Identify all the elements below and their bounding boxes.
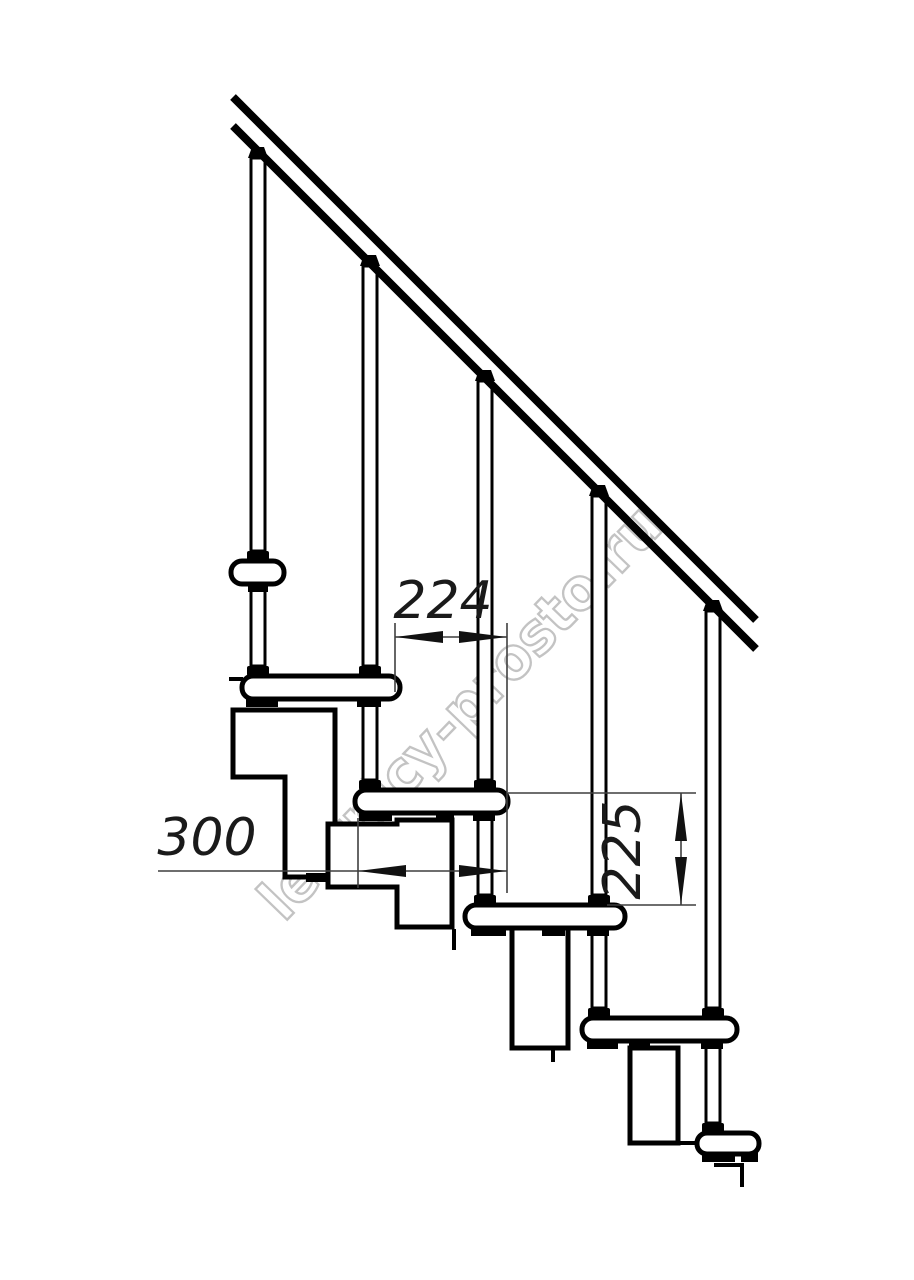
tread-6 (697, 1133, 759, 1154)
tread-foot (471, 927, 506, 936)
support-rod (592, 928, 606, 1008)
tread-foot (701, 1040, 723, 1049)
tread-foot (473, 812, 495, 821)
handrail (233, 97, 756, 649)
arrow-left-icon (395, 631, 443, 643)
dimension-label-224: 224 (393, 571, 492, 631)
tread-foot (629, 1040, 650, 1049)
tread-foot (246, 697, 278, 707)
tread-foot (587, 927, 609, 936)
tread-foot (542, 927, 565, 936)
tread-3 (355, 790, 508, 813)
support-rod (478, 813, 492, 895)
dimension-label-300: 300 (157, 808, 256, 868)
arrow-up-icon (675, 793, 687, 841)
dimension-225: 225 (508, 793, 696, 905)
baluster-shaft (363, 266, 377, 666)
module-edge-line (714, 1165, 742, 1187)
stringer-module-under-tread-4 (512, 928, 568, 1048)
tread-foot (741, 1152, 758, 1162)
handrail-lower-edge (233, 126, 756, 649)
staircase-drawing-page: lestnicy-prosto.ru (0, 0, 914, 1280)
tread-5 (582, 1018, 737, 1041)
baluster-shaft (251, 158, 265, 551)
tread-4 (465, 905, 625, 928)
tread-foot (357, 697, 381, 707)
balusters (251, 158, 720, 1123)
arrow-down-icon (675, 857, 687, 905)
tread-1 (231, 561, 284, 584)
tread-foot (359, 812, 392, 821)
stringer-module-under-tread-5 (630, 1048, 678, 1143)
tread-foot (702, 1152, 735, 1162)
tread-2 (242, 676, 400, 699)
handrail-upper-edge (233, 97, 756, 620)
tread-foot (587, 1040, 618, 1049)
tread-foot (436, 812, 454, 821)
tread-foot (248, 584, 268, 592)
support-rod (706, 1041, 720, 1123)
staircase-technical-drawing: lestnicy-prosto.ru (0, 0, 914, 1280)
dimension-label-225: 225 (593, 800, 653, 899)
baluster-shaft (706, 611, 720, 1008)
support-rod (363, 699, 377, 780)
support-rod (251, 584, 265, 666)
